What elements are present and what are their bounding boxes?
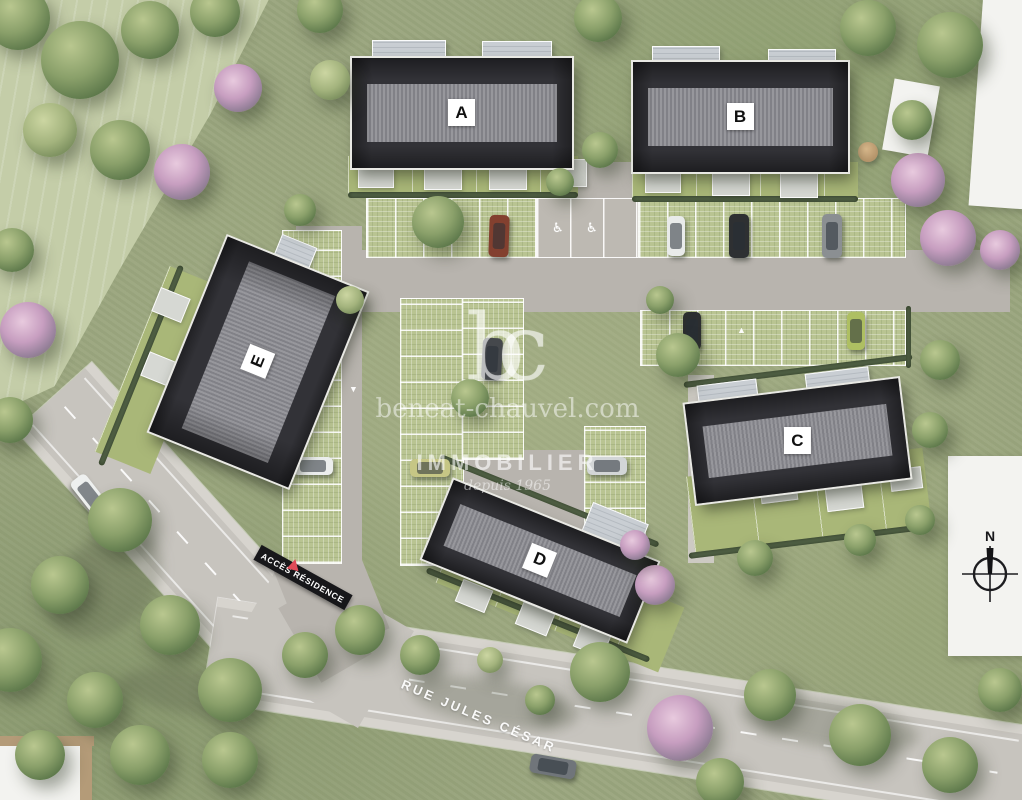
building-a: A	[352, 58, 572, 168]
tree	[978, 668, 1022, 712]
tree	[214, 64, 262, 112]
tree	[284, 194, 316, 226]
tree	[920, 340, 960, 380]
tree	[656, 333, 700, 377]
tree	[121, 1, 179, 59]
tree	[546, 168, 574, 196]
tree	[202, 732, 258, 788]
tree	[88, 488, 152, 552]
hedge	[906, 306, 911, 368]
tree	[198, 658, 262, 722]
car-glass	[733, 222, 746, 250]
tree	[310, 60, 350, 100]
car-glass	[492, 222, 506, 249]
car-glass	[594, 460, 620, 472]
tree	[696, 758, 744, 800]
tree	[0, 628, 42, 692]
car	[587, 457, 627, 475]
tree	[840, 0, 896, 56]
hedge	[348, 192, 578, 198]
tree	[905, 505, 935, 535]
disabled-parking-icon: ♿	[586, 222, 598, 235]
tree	[574, 0, 622, 42]
car-glass	[537, 757, 568, 774]
tree	[400, 635, 440, 675]
tree	[844, 524, 876, 556]
car	[847, 312, 865, 350]
car	[410, 459, 450, 477]
tree	[922, 737, 978, 793]
car-glass	[670, 223, 682, 249]
car-glass	[417, 462, 443, 474]
disabled-parking-icon: ♿	[552, 222, 564, 235]
tree	[646, 286, 674, 314]
tree	[41, 21, 119, 99]
compass: N	[960, 528, 1020, 608]
car-glass	[485, 345, 499, 373]
tree	[744, 669, 796, 721]
tree	[282, 632, 328, 678]
pavement-arrow-icon: ▲	[349, 385, 358, 394]
garden-patio	[780, 172, 818, 198]
car	[729, 214, 749, 258]
tree	[829, 704, 891, 766]
car	[488, 215, 509, 258]
tree	[620, 530, 650, 560]
garden-patio	[825, 484, 865, 512]
building-e-label: E	[240, 344, 275, 379]
tree	[154, 144, 210, 200]
car-glass	[850, 319, 862, 343]
tree	[917, 12, 983, 78]
car	[667, 216, 685, 256]
compass-rose-icon	[961, 545, 1019, 603]
aerial-site-plan: A B C D E ♿ ♿ ▲ ▲ bc beneat-chauvel.com …	[0, 0, 1022, 800]
garden-patio	[712, 170, 750, 196]
tree	[140, 595, 200, 655]
building-b-label: B	[727, 103, 754, 130]
neighbor-building-edge	[80, 736, 92, 800]
tree	[525, 685, 555, 715]
building-d-label: D	[522, 542, 557, 577]
tree	[891, 153, 945, 207]
tree	[90, 120, 150, 180]
pavement-arrow-icon: ▲	[737, 326, 746, 335]
hedge	[632, 196, 858, 202]
tree	[23, 103, 77, 157]
tree	[647, 695, 713, 761]
tree	[912, 412, 948, 448]
tree	[412, 196, 464, 248]
car	[481, 338, 503, 381]
tree	[570, 642, 630, 702]
tree	[477, 647, 503, 673]
building-c-label: C	[783, 427, 810, 454]
car-glass	[300, 460, 326, 472]
tree	[31, 556, 89, 614]
tree	[920, 210, 976, 266]
tree	[451, 379, 489, 417]
tree	[892, 100, 932, 140]
tree	[582, 132, 618, 168]
tree	[335, 605, 385, 655]
car-glass	[826, 222, 839, 250]
tree	[737, 540, 773, 576]
parasol	[858, 142, 878, 162]
tree	[336, 286, 364, 314]
building-b: B	[633, 62, 848, 172]
building-a-label: A	[448, 99, 475, 126]
tree	[67, 672, 123, 728]
tree	[110, 725, 170, 785]
tree	[0, 302, 56, 358]
compass-north-label: N	[960, 528, 1020, 544]
tree	[635, 565, 675, 605]
car	[822, 214, 842, 258]
tree	[15, 730, 65, 780]
tree	[980, 230, 1020, 270]
tree	[297, 0, 343, 33]
